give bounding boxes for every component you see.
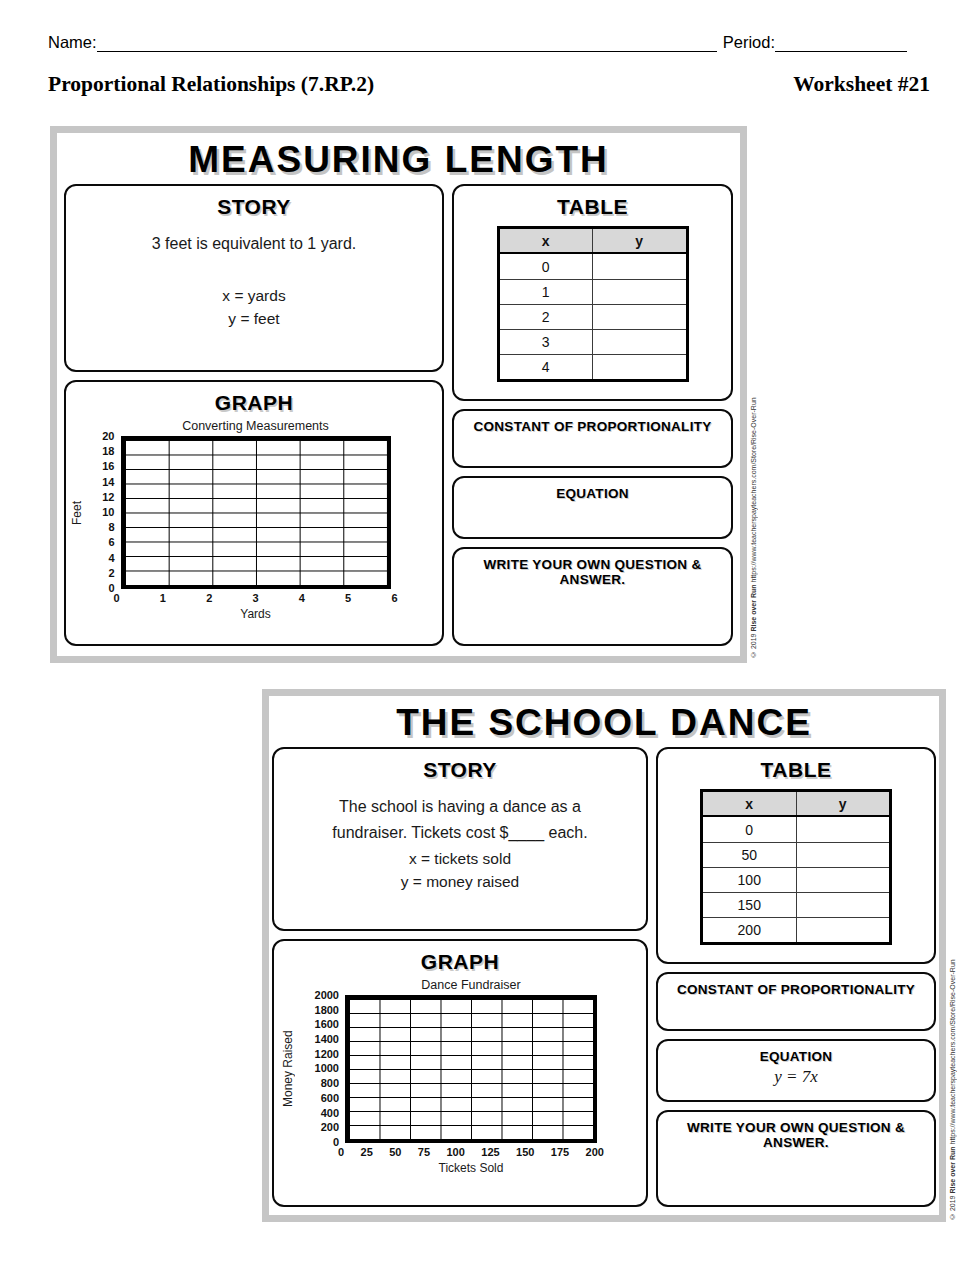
tick-label: 50 [389, 1146, 401, 1158]
tick-label: 4 [108, 553, 114, 564]
table-row: 3 [500, 329, 686, 354]
panel-the-school-dance: THE SCHOOL DANCE STORY The school is hav… [262, 689, 946, 1222]
y-definition: y = feet [66, 307, 442, 330]
x-value-cell: 150 [703, 893, 797, 917]
table-body: 050100150200 [703, 817, 889, 942]
period-blank-line [775, 32, 907, 52]
panel2-title: THE SCHOOL DANCE [269, 702, 939, 744]
y-axis-ticks: 2000180016001400120010008006004002000 [297, 990, 345, 1148]
own-question-heading: WRITE YOUR OWN QUESTION & ANSWER. [658, 1112, 934, 1150]
own-question-heading: WRITE YOUR OWN QUESTION & ANSWER. [454, 549, 731, 587]
graph-heading: GRAPH [274, 941, 646, 974]
panel-measuring-length: MEASURING LENGTH STORY 3 feet is equival… [50, 126, 747, 663]
tick-label: 1800 [315, 1005, 339, 1016]
equation-heading: EQUATION [658, 1041, 934, 1064]
tick-label: 600 [321, 1093, 339, 1104]
graph-box: GRAPH Converting Measurements Feet 20181… [64, 380, 444, 646]
tick-label: 150 [516, 1146, 534, 1158]
chart-title: Dance Fundraiser [345, 978, 597, 995]
y-value-cell-blank [797, 868, 890, 892]
story-heading: STORY [66, 186, 442, 219]
chart-title: Converting Measurements [121, 419, 391, 436]
table-row: 1 [500, 279, 686, 304]
copyright-author: Rise over Run [949, 1146, 956, 1193]
tick-label: 175 [551, 1146, 569, 1158]
table-row: 100 [703, 867, 889, 892]
table-row: 150 [703, 892, 889, 917]
tick-label: 800 [321, 1078, 339, 1089]
tick-label: 2000 [315, 990, 339, 1001]
table-row: 0 [500, 254, 686, 279]
tick-label: 1000 [315, 1063, 339, 1074]
tick-label: 5 [345, 592, 351, 604]
copyright-prefix: © 2019 [949, 1194, 956, 1220]
tick-label: 12 [102, 492, 114, 503]
course-title: Proportional Relationships (7.RP.2) [48, 72, 374, 97]
tick-label: 20 [102, 431, 114, 442]
own-question-box: WRITE YOUR OWN QUESTION & ANSWER. [656, 1110, 936, 1207]
constant-of-proportionality-box: CONSTANT OF PROPORTIONALITY [452, 409, 733, 468]
x-column-header: x [500, 229, 594, 252]
table-row: 4 [500, 354, 686, 379]
tick-label: 4 [299, 592, 305, 604]
own-question-box: WRITE YOUR OWN QUESTION & ANSWER. [452, 547, 733, 646]
y-value-cell-blank [593, 355, 686, 379]
y-column-header: y [593, 229, 686, 252]
x-column-header: x [703, 792, 797, 815]
tick-label: 75 [418, 1146, 430, 1158]
y-value-cell-blank [797, 893, 890, 917]
copyright-text: © 2019 Rise over Run https://www.teacher… [750, 352, 757, 658]
tick-label: 0 [338, 1146, 344, 1158]
table-row: 2 [500, 304, 686, 329]
x-axis-ticks: 0255075100125150175200 [338, 1146, 604, 1158]
table-row: 50 [703, 842, 889, 867]
graph-box: GRAPH Dance Fundraiser Money Raised 2000… [272, 939, 648, 1207]
x-value-cell: 3 [500, 330, 594, 354]
table-row: 200 [703, 917, 889, 942]
y-axis-label: Money Raised [279, 995, 297, 1143]
y-value-cell-blank [593, 280, 686, 304]
y-value-cell-blank [593, 305, 686, 329]
data-table: x y 01234 [497, 226, 689, 382]
x-value-cell: 1 [500, 280, 594, 304]
x-value-cell: 0 [500, 254, 594, 279]
x-definition: x = tickets sold [274, 847, 646, 870]
tick-label: 1400 [315, 1034, 339, 1045]
tick-label: 6 [391, 592, 397, 604]
tick-label: 16 [102, 461, 114, 472]
tick-label: 2 [108, 568, 114, 579]
x-axis-label: Yards [121, 604, 391, 621]
equation-box: EQUATION [452, 476, 733, 539]
y-value-cell-blank [593, 330, 686, 354]
y-axis-label: Feet [69, 436, 85, 589]
table-box: TABLE x y 01234 [452, 184, 733, 401]
data-table: x y 050100150200 [700, 789, 892, 945]
y-axis-ticks: 20181614121086420 [85, 431, 121, 594]
plot-grid [345, 995, 597, 1143]
period-label: Period: [723, 33, 775, 52]
table-body: 01234 [500, 254, 686, 379]
tick-label: 1200 [315, 1049, 339, 1060]
equation-heading: EQUATION [454, 478, 731, 501]
equation-value: y = 7x [658, 1067, 934, 1087]
y-definition: y = money raised [274, 870, 646, 893]
tick-label: 2 [206, 592, 212, 604]
plot-grid [121, 436, 391, 589]
tick-label: 10 [102, 507, 114, 518]
table-box: TABLE x y 050100150200 [656, 747, 936, 964]
tick-label: 14 [102, 477, 114, 488]
panel2-body: STORY The school is having a dance as af… [269, 747, 939, 1207]
tick-label: 100 [447, 1146, 465, 1158]
story-line: fundraiser. Tickets cost $____ each. [274, 820, 646, 846]
tick-label: 125 [481, 1146, 499, 1158]
y-value-cell-blank [797, 843, 890, 867]
panel1-body: STORY 3 feet is equivalent to 1 yard. x … [57, 184, 740, 646]
table-row: 0 [703, 817, 889, 842]
tick-label: 6 [108, 537, 114, 548]
tick-label: 25 [361, 1146, 373, 1158]
tick-label: 400 [321, 1108, 339, 1119]
x-value-cell: 50 [703, 843, 797, 867]
table-heading: TABLE [658, 749, 934, 782]
copyright-url: https://www.teacherspayteachers.com/Stor… [750, 397, 757, 584]
x-value-cell: 4 [500, 355, 594, 379]
graph-heading: GRAPH [66, 382, 442, 415]
table-heading: TABLE [454, 186, 731, 219]
table-header-row: x y [500, 229, 686, 254]
x-axis-ticks: 0123456 [114, 592, 398, 604]
story-text: 3 feet is equivalent to 1 yard. [66, 231, 442, 284]
story-box: STORY 3 feet is equivalent to 1 yard. x … [64, 184, 444, 372]
tick-label: 1600 [315, 1019, 339, 1030]
x-axis-label: Tickets Sold [345, 1158, 597, 1175]
constant-heading: CONSTANT OF PROPORTIONALITY [454, 411, 731, 434]
y-value-cell-blank [593, 254, 686, 279]
x-definition: x = yards [66, 284, 442, 307]
tick-label: 0 [114, 592, 120, 604]
title-row: Proportional Relationships (7.RP.2) Work… [48, 72, 930, 97]
y-column-header: y [797, 792, 890, 815]
name-label: Name: [48, 33, 97, 52]
tick-label: 200 [586, 1146, 604, 1158]
copyright-author: Rise over Run [750, 584, 757, 631]
copyright-prefix: © 2019 [750, 632, 757, 658]
copyright-url: https://www.teacherspayteachers.com/Stor… [949, 959, 956, 1146]
x-value-cell: 200 [703, 918, 797, 942]
tick-label: 8 [108, 522, 114, 533]
story-heading: STORY [274, 749, 646, 782]
chart-dance-fundraiser: Dance Fundraiser Money Raised 2000180016… [274, 978, 646, 1175]
story-line: The school is having a dance as a [274, 794, 646, 820]
x-value-cell: 2 [500, 305, 594, 329]
tick-label: 1 [160, 592, 166, 604]
tick-label: 200 [321, 1122, 339, 1133]
story-box: STORY The school is having a dance as af… [272, 747, 648, 931]
x-value-cell: 100 [703, 868, 797, 892]
story-text: The school is having a dance as afundrai… [274, 794, 646, 847]
name-period-row: Name: Period: [48, 32, 907, 52]
chart-converting-measurements: Converting Measurements Feet 20181614121… [66, 419, 442, 621]
name-blank-line [97, 32, 717, 52]
equation-box: EQUATION y = 7x [656, 1039, 936, 1102]
y-value-cell-blank [797, 817, 890, 842]
constant-heading: CONSTANT OF PROPORTIONALITY [658, 974, 934, 997]
panel1-title: MEASURING LENGTH [57, 139, 740, 181]
worksheet-number: Worksheet #21 [793, 72, 930, 97]
tick-label: 18 [102, 446, 114, 457]
worksheet-page: Name: Period: Proportional Relationships… [0, 0, 979, 1266]
y-value-cell-blank [797, 918, 890, 942]
story-line: 3 feet is equivalent to 1 yard. [66, 231, 442, 257]
table-header-row: x y [703, 792, 889, 817]
constant-of-proportionality-box: CONSTANT OF PROPORTIONALITY [656, 972, 936, 1031]
tick-label: 3 [252, 592, 258, 604]
copyright-text: © 2019 Rise over Run https://www.teacher… [949, 914, 956, 1220]
x-value-cell: 0 [703, 817, 797, 842]
